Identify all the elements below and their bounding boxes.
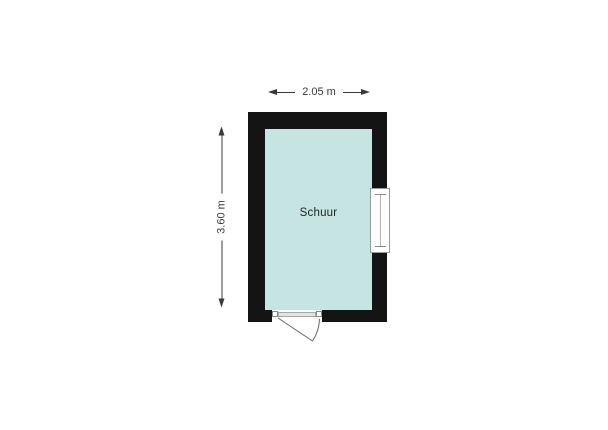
window-frame-bottom bbox=[375, 246, 386, 247]
room-label: Schuur bbox=[265, 207, 372, 219]
window-glass-line bbox=[380, 195, 381, 246]
floorplan-canvas: Schuur 2.05 m 3.60 m bbox=[0, 0, 608, 430]
door-jamb-right bbox=[316, 311, 322, 317]
dimension-width: 2.05 m bbox=[268, 85, 370, 99]
window-icon bbox=[370, 188, 390, 253]
door-jamb-left bbox=[272, 311, 278, 317]
arrow-down-icon bbox=[219, 299, 225, 308]
dimension-height: 3.60 m bbox=[215, 127, 229, 308]
dimension-line bbox=[277, 92, 295, 93]
arrow-left-icon bbox=[268, 89, 277, 95]
dimension-height-label: 3.60 m bbox=[215, 193, 229, 241]
dimension-width-label: 2.05 m bbox=[295, 85, 343, 99]
dimension-line bbox=[343, 92, 361, 93]
door-threshold bbox=[278, 312, 316, 317]
dimension-line bbox=[221, 135, 222, 193]
dimension-line bbox=[221, 241, 222, 299]
room-floor-schuur bbox=[265, 129, 372, 310]
arrow-right-icon bbox=[361, 89, 370, 95]
arrow-up-icon bbox=[219, 126, 225, 135]
